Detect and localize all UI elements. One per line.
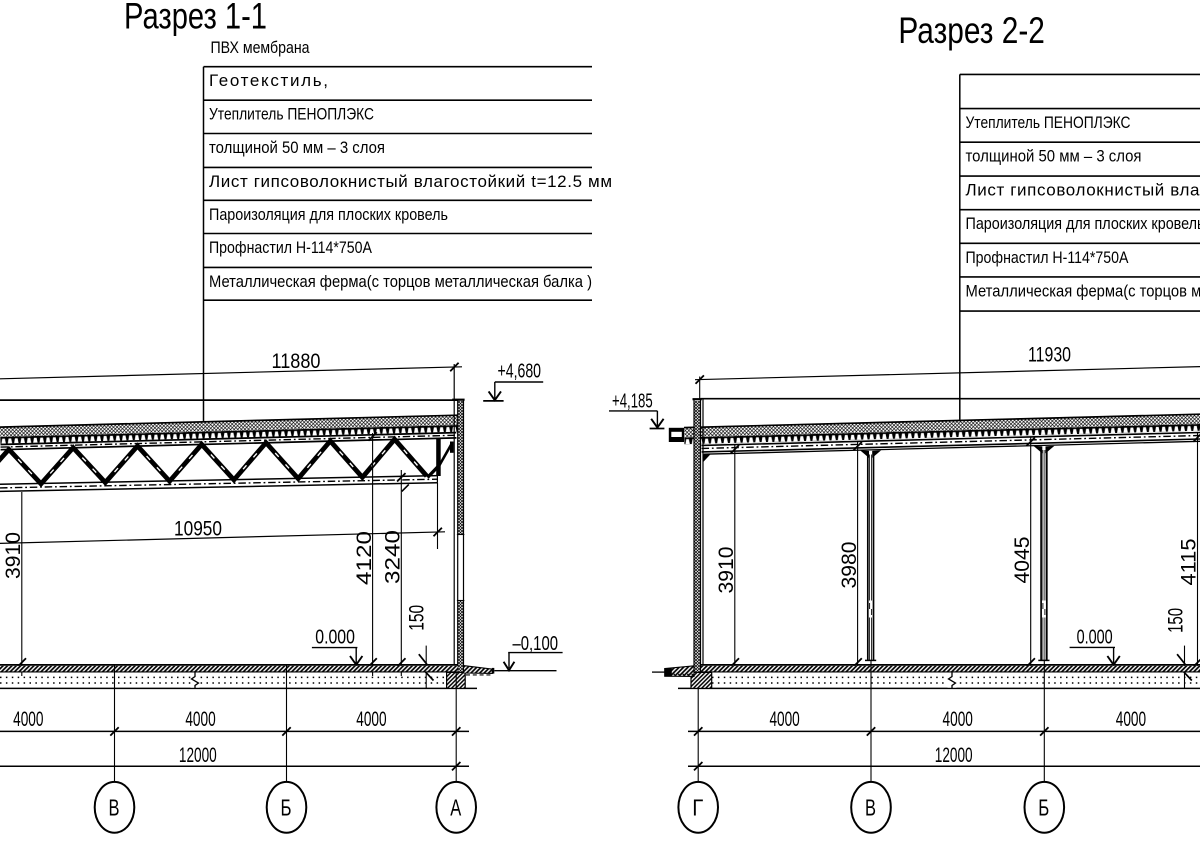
svg-text:150: 150 (1165, 608, 1188, 633)
svg-text:ПВХ мембрана: ПВХ мембрана (211, 38, 310, 57)
svg-text:толщиной 50 мм – 3 слоя: толщиной 50 мм – 3 слоя (966, 147, 1142, 166)
svg-text:–0,100: –0,100 (513, 632, 559, 655)
svg-text:Утеплитель ПЕНОПЛЭКС: Утеплитель ПЕНОПЛЭКС (966, 113, 1131, 132)
svg-text:11880: 11880 (272, 350, 321, 373)
svg-text:11930: 11930 (1028, 344, 1071, 367)
svg-text:Лист гипсоволокнистый влагосто: Лист гипсоволокнистый влагостойкий t=12.… (209, 172, 612, 191)
svg-text:4000: 4000 (185, 708, 215, 731)
svg-text:4000: 4000 (356, 708, 386, 731)
svg-text:Б: Б (281, 795, 292, 821)
svg-text:В: В (865, 795, 876, 821)
svg-text:4000: 4000 (13, 708, 43, 731)
svg-text:3980: 3980 (838, 542, 861, 589)
svg-text:12000: 12000 (935, 744, 973, 767)
svg-text:Г: Г (692, 795, 703, 821)
svg-text:Утеплитель ПЕНОПЛЭКС: Утеплитель ПЕНОПЛЭКС (209, 105, 374, 124)
svg-text:Разрез 2-2: Разрез 2-2 (898, 10, 1045, 51)
svg-text:4000: 4000 (943, 708, 973, 731)
svg-text:4045: 4045 (1011, 537, 1034, 584)
svg-text:4115: 4115 (1178, 539, 1200, 586)
svg-text:10950: 10950 (174, 518, 222, 541)
svg-text:Пароизоляция для плоских крове: Пароизоляция для плоских кровель (209, 205, 448, 224)
svg-text:4000: 4000 (769, 708, 799, 731)
svg-text:Б: Б (1038, 795, 1049, 821)
svg-text:3910: 3910 (2, 532, 25, 579)
svg-text:Разрез 1-1: Разрез 1-1 (124, 0, 267, 37)
svg-text:3910: 3910 (715, 547, 738, 594)
svg-text:0.000: 0.000 (1077, 625, 1113, 648)
svg-text:Профнастил Н-114*750А: Профнастил Н-114*750А (966, 248, 1130, 267)
svg-text:0.000: 0.000 (315, 626, 355, 649)
svg-text:12000: 12000 (179, 744, 217, 767)
svg-text:+4,680: +4,680 (498, 360, 542, 383)
svg-text:толщиной 50 мм – 3 слоя: толщиной 50 мм – 3 слоя (209, 138, 385, 157)
svg-text:Металлическая ферма(с торцов м: Металлическая ферма(с торцов металлическ… (209, 272, 592, 291)
svg-text:Геотекстиль,: Геотекстиль, (209, 71, 328, 90)
svg-text:+4,185: +4,185 (612, 389, 653, 412)
svg-text:Пароизоляция для плоских крове: Пароизоляция для плоских кровель (966, 214, 1200, 233)
svg-text:4000: 4000 (1116, 708, 1146, 731)
svg-text:Профнастил Н-114*750А: Профнастил Н-114*750А (209, 238, 373, 257)
svg-text:4120: 4120 (353, 531, 376, 585)
svg-text:Металлическая ферма(с торцов м: Металлическая ферма(с торцов металлическ… (966, 281, 1200, 300)
svg-text:В: В (109, 795, 120, 821)
svg-text:А: А (450, 795, 461, 821)
svg-text:3240: 3240 (382, 530, 405, 584)
svg-text:Лист гипсоволокнистый влагосто: Лист гипсоволокнистый влагостойкий t=12.… (966, 181, 1200, 200)
svg-text:150: 150 (406, 605, 429, 631)
